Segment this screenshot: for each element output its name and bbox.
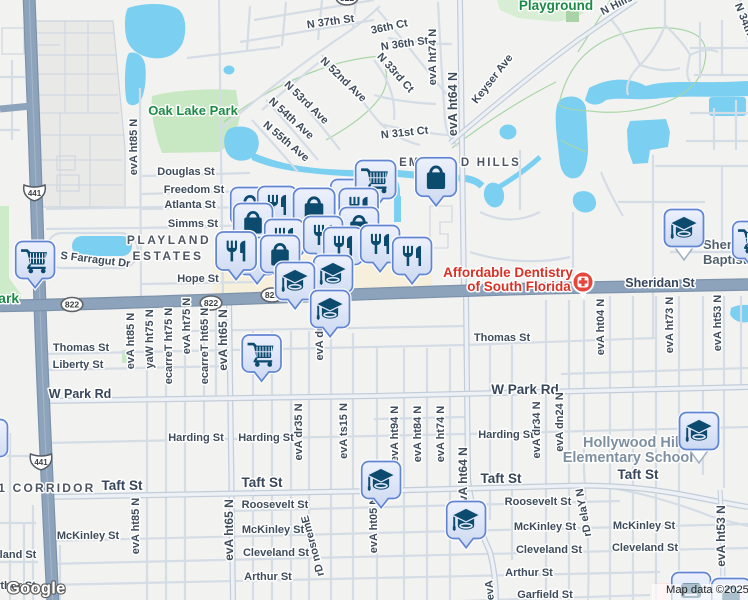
svg-text:evA dr35 N: evA dr35 N [293, 403, 305, 460]
svg-text:Arthur St: Arthur St [244, 571, 292, 583]
svg-text:evA ht85 N: evA ht85 N [125, 313, 137, 370]
svg-text:Oak Lake Park: Oak Lake Park [148, 103, 238, 118]
svg-text:evA ts15 N: evA ts15 N [338, 403, 350, 459]
svg-text:Harding St: Harding St [168, 432, 224, 444]
svg-text:822: 822 [340, 0, 355, 3]
svg-text:822: 822 [204, 298, 219, 308]
svg-text:Taft St: Taft St [481, 471, 522, 486]
svg-text:Douglas St: Douglas St [157, 166, 215, 178]
svg-text:yaW ht75 N: yaW ht75 N [144, 309, 156, 368]
svg-text:Cleveland St: Cleveland St [612, 542, 678, 554]
svg-text:Simms St: Simms St [168, 218, 218, 230]
svg-text:441: 441 [34, 458, 48, 467]
svg-text:Arthur St: Arthur St [505, 567, 553, 579]
svg-text:W Park Rd: W Park Rd [491, 382, 559, 397]
svg-text:evA ht94 N: evA ht94 N [389, 406, 401, 463]
svg-text:Harding St: Harding St [238, 432, 294, 444]
svg-text:McKinley St: McKinley St [514, 521, 577, 533]
svg-text:McKinley St: McKinley St [57, 530, 120, 542]
svg-text:evA ht85 N: evA ht85 N [130, 498, 142, 555]
svg-text:evA ht53 N: evA ht53 N [712, 295, 724, 352]
svg-text:Garfield St: Garfield St [517, 589, 573, 600]
svg-text:Thomas St: Thomas St [474, 332, 531, 344]
svg-text:822: 822 [65, 300, 80, 310]
svg-text:Affordable Dentistry: Affordable Dentistry [443, 265, 573, 280]
svg-text:Cleveland St: Cleveland St [516, 544, 582, 556]
svg-text:evA ht65 N: evA ht65 N [216, 309, 230, 371]
svg-text:evA: evA [483, 580, 497, 600]
svg-text:Freedom St: Freedom St [164, 184, 225, 196]
svg-text:McKinley St: McKinley St [242, 524, 305, 536]
svg-text:evA dr34 N: evA dr34 N [531, 401, 543, 458]
svg-text:evA ht53 N: evA ht53 N [714, 505, 728, 567]
svg-text:evA dn24 N: evA dn24 N [554, 392, 566, 452]
svg-text:Harding St: Harding St [478, 429, 534, 441]
svg-text:evA ht65 N: evA ht65 N [222, 499, 236, 561]
svg-text:evA ht74 N: evA ht74 N [435, 406, 447, 463]
svg-text:Thomas St: Thomas St [53, 342, 110, 354]
svg-text:441: 441 [28, 189, 42, 198]
svg-text:441 CORRIDOR: 441 CORRIDOR [0, 481, 96, 495]
svg-text:PLAYLAND: PLAYLAND [127, 233, 211, 247]
svg-text:evA ht84 N: evA ht84 N [412, 406, 424, 463]
svg-text:of South Florida: of South Florida [467, 279, 571, 294]
svg-text:McKinley St: McKinley St [613, 520, 676, 532]
svg-text:Roosevelt St: Roosevelt St [242, 499, 309, 511]
svg-text:Elementary School: Elementary School [563, 450, 694, 466]
svg-text:evA ht85 N: evA ht85 N [128, 119, 140, 176]
svg-text:Taft St: Taft St [618, 467, 659, 482]
svg-text:evA ht74 N: evA ht74 N [427, 29, 439, 86]
svg-text:Hope St: Hope St [177, 273, 219, 285]
svg-text:evA ht75 N: evA ht75 N [181, 298, 193, 355]
svg-text:evA ht64 N: evA ht64 N [446, 72, 460, 136]
svg-text:Hollywood Hills: Hollywood Hills [583, 435, 691, 451]
svg-text:land St: land St [0, 549, 37, 561]
svg-text:Taft St: Taft St [242, 475, 283, 490]
svg-text:Playground: Playground [519, 0, 593, 13]
svg-text:Liberty St: Liberty St [53, 359, 104, 371]
svg-text:Cleveland St: Cleveland St [243, 547, 309, 559]
svg-text:Atlanta St: Atlanta St [164, 199, 216, 211]
svg-text:Roosevelt St: Roosevelt St [505, 496, 572, 508]
svg-text:Google: Google [7, 580, 66, 598]
svg-text:Map data ©2025: Map data ©2025 [666, 584, 748, 596]
svg-text:ecarreT ht75 N: ecarreT ht75 N [163, 308, 175, 384]
svg-text:ecarreT ht65 N: ecarreT ht65 N [199, 308, 211, 384]
svg-text:Park: Park [0, 290, 19, 306]
svg-text:W Park Rd: W Park Rd [49, 387, 112, 401]
svg-text:ESTATES: ESTATES [132, 249, 203, 263]
svg-text:evA ht73 N: evA ht73 N [664, 297, 676, 354]
svg-text:Taft St: Taft St [102, 478, 143, 493]
svg-text:Sheridan St: Sheridan St [625, 276, 695, 290]
svg-text:evA ht04 N: evA ht04 N [595, 299, 607, 356]
